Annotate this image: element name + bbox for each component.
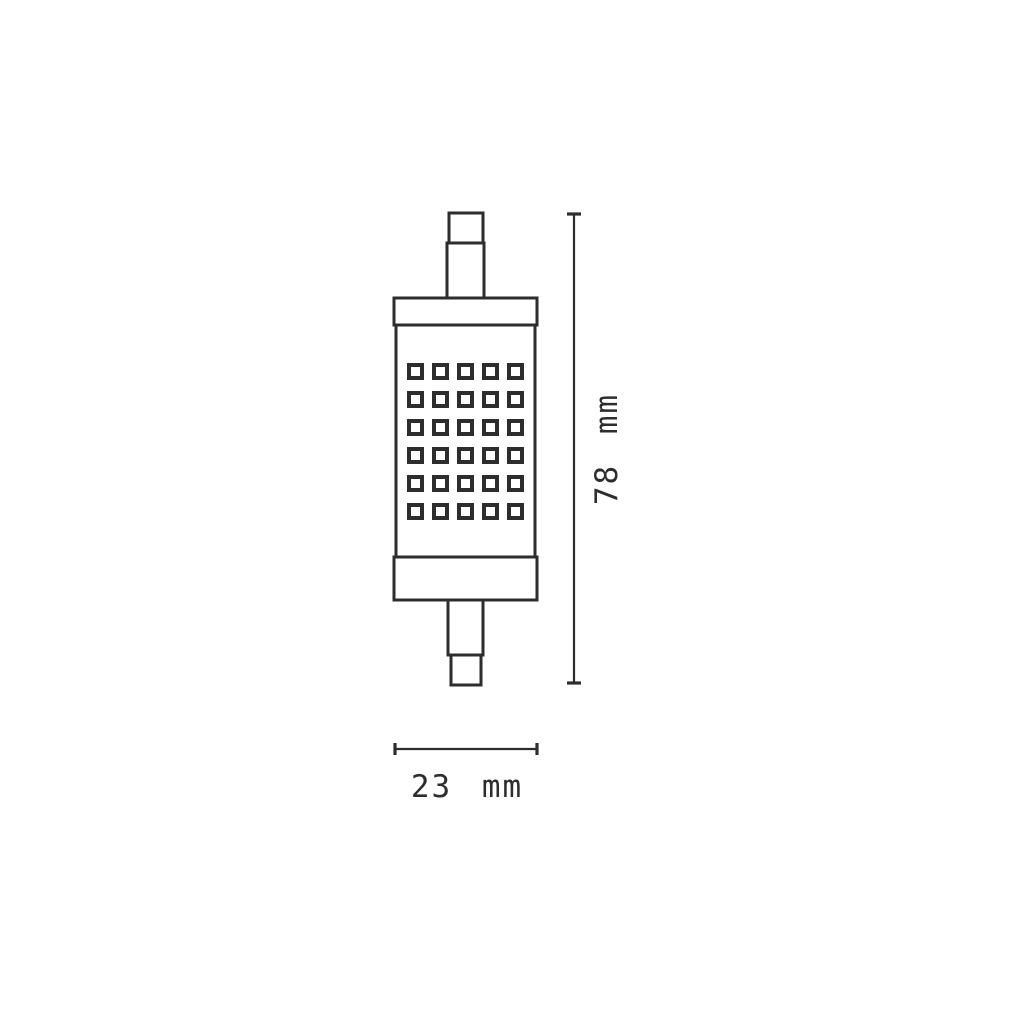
led-chip (409, 421, 422, 434)
bottom-contact-tip (451, 655, 481, 685)
led-chip (409, 477, 422, 490)
led-chip (459, 449, 472, 462)
lamp-tube-body (396, 325, 535, 557)
lamp-technical-drawing: 78 mm 23 mm (0, 0, 1024, 1024)
top-contact-tip (449, 213, 483, 243)
led-chip (459, 421, 472, 434)
width-dimension-label: 23 mm (411, 769, 523, 805)
led-chip (484, 477, 497, 490)
bottom-end-cap (394, 557, 537, 600)
led-chip (484, 393, 497, 406)
technical-drawing-canvas: 78 mm 23 mm (0, 0, 1024, 1024)
led-chip (509, 449, 522, 462)
led-chip (459, 505, 472, 518)
led-chip (409, 449, 422, 462)
led-chip (434, 505, 447, 518)
height-dimension-label: 78 mm (589, 393, 625, 505)
led-chip (434, 365, 447, 378)
height-dimension: 78 mm (567, 214, 625, 683)
led-chip (434, 393, 447, 406)
led-chip (484, 365, 497, 378)
led-chip (409, 505, 422, 518)
led-chip (434, 477, 447, 490)
top-end-cap (394, 298, 537, 325)
led-chip (509, 365, 522, 378)
top-base-pin (447, 243, 484, 298)
led-chip (484, 505, 497, 518)
bottom-base-pin (448, 600, 483, 655)
led-chip (409, 365, 422, 378)
led-chip (509, 505, 522, 518)
width-dimension: 23 mm (395, 743, 537, 805)
led-chip (484, 449, 497, 462)
led-chip (459, 477, 472, 490)
led-chip (484, 421, 497, 434)
led-chip (509, 477, 522, 490)
led-chip (459, 393, 472, 406)
led-chip (434, 449, 447, 462)
led-chip (434, 421, 447, 434)
led-chip (509, 421, 522, 434)
led-chip (409, 393, 422, 406)
led-chip (509, 393, 522, 406)
led-chip (459, 365, 472, 378)
